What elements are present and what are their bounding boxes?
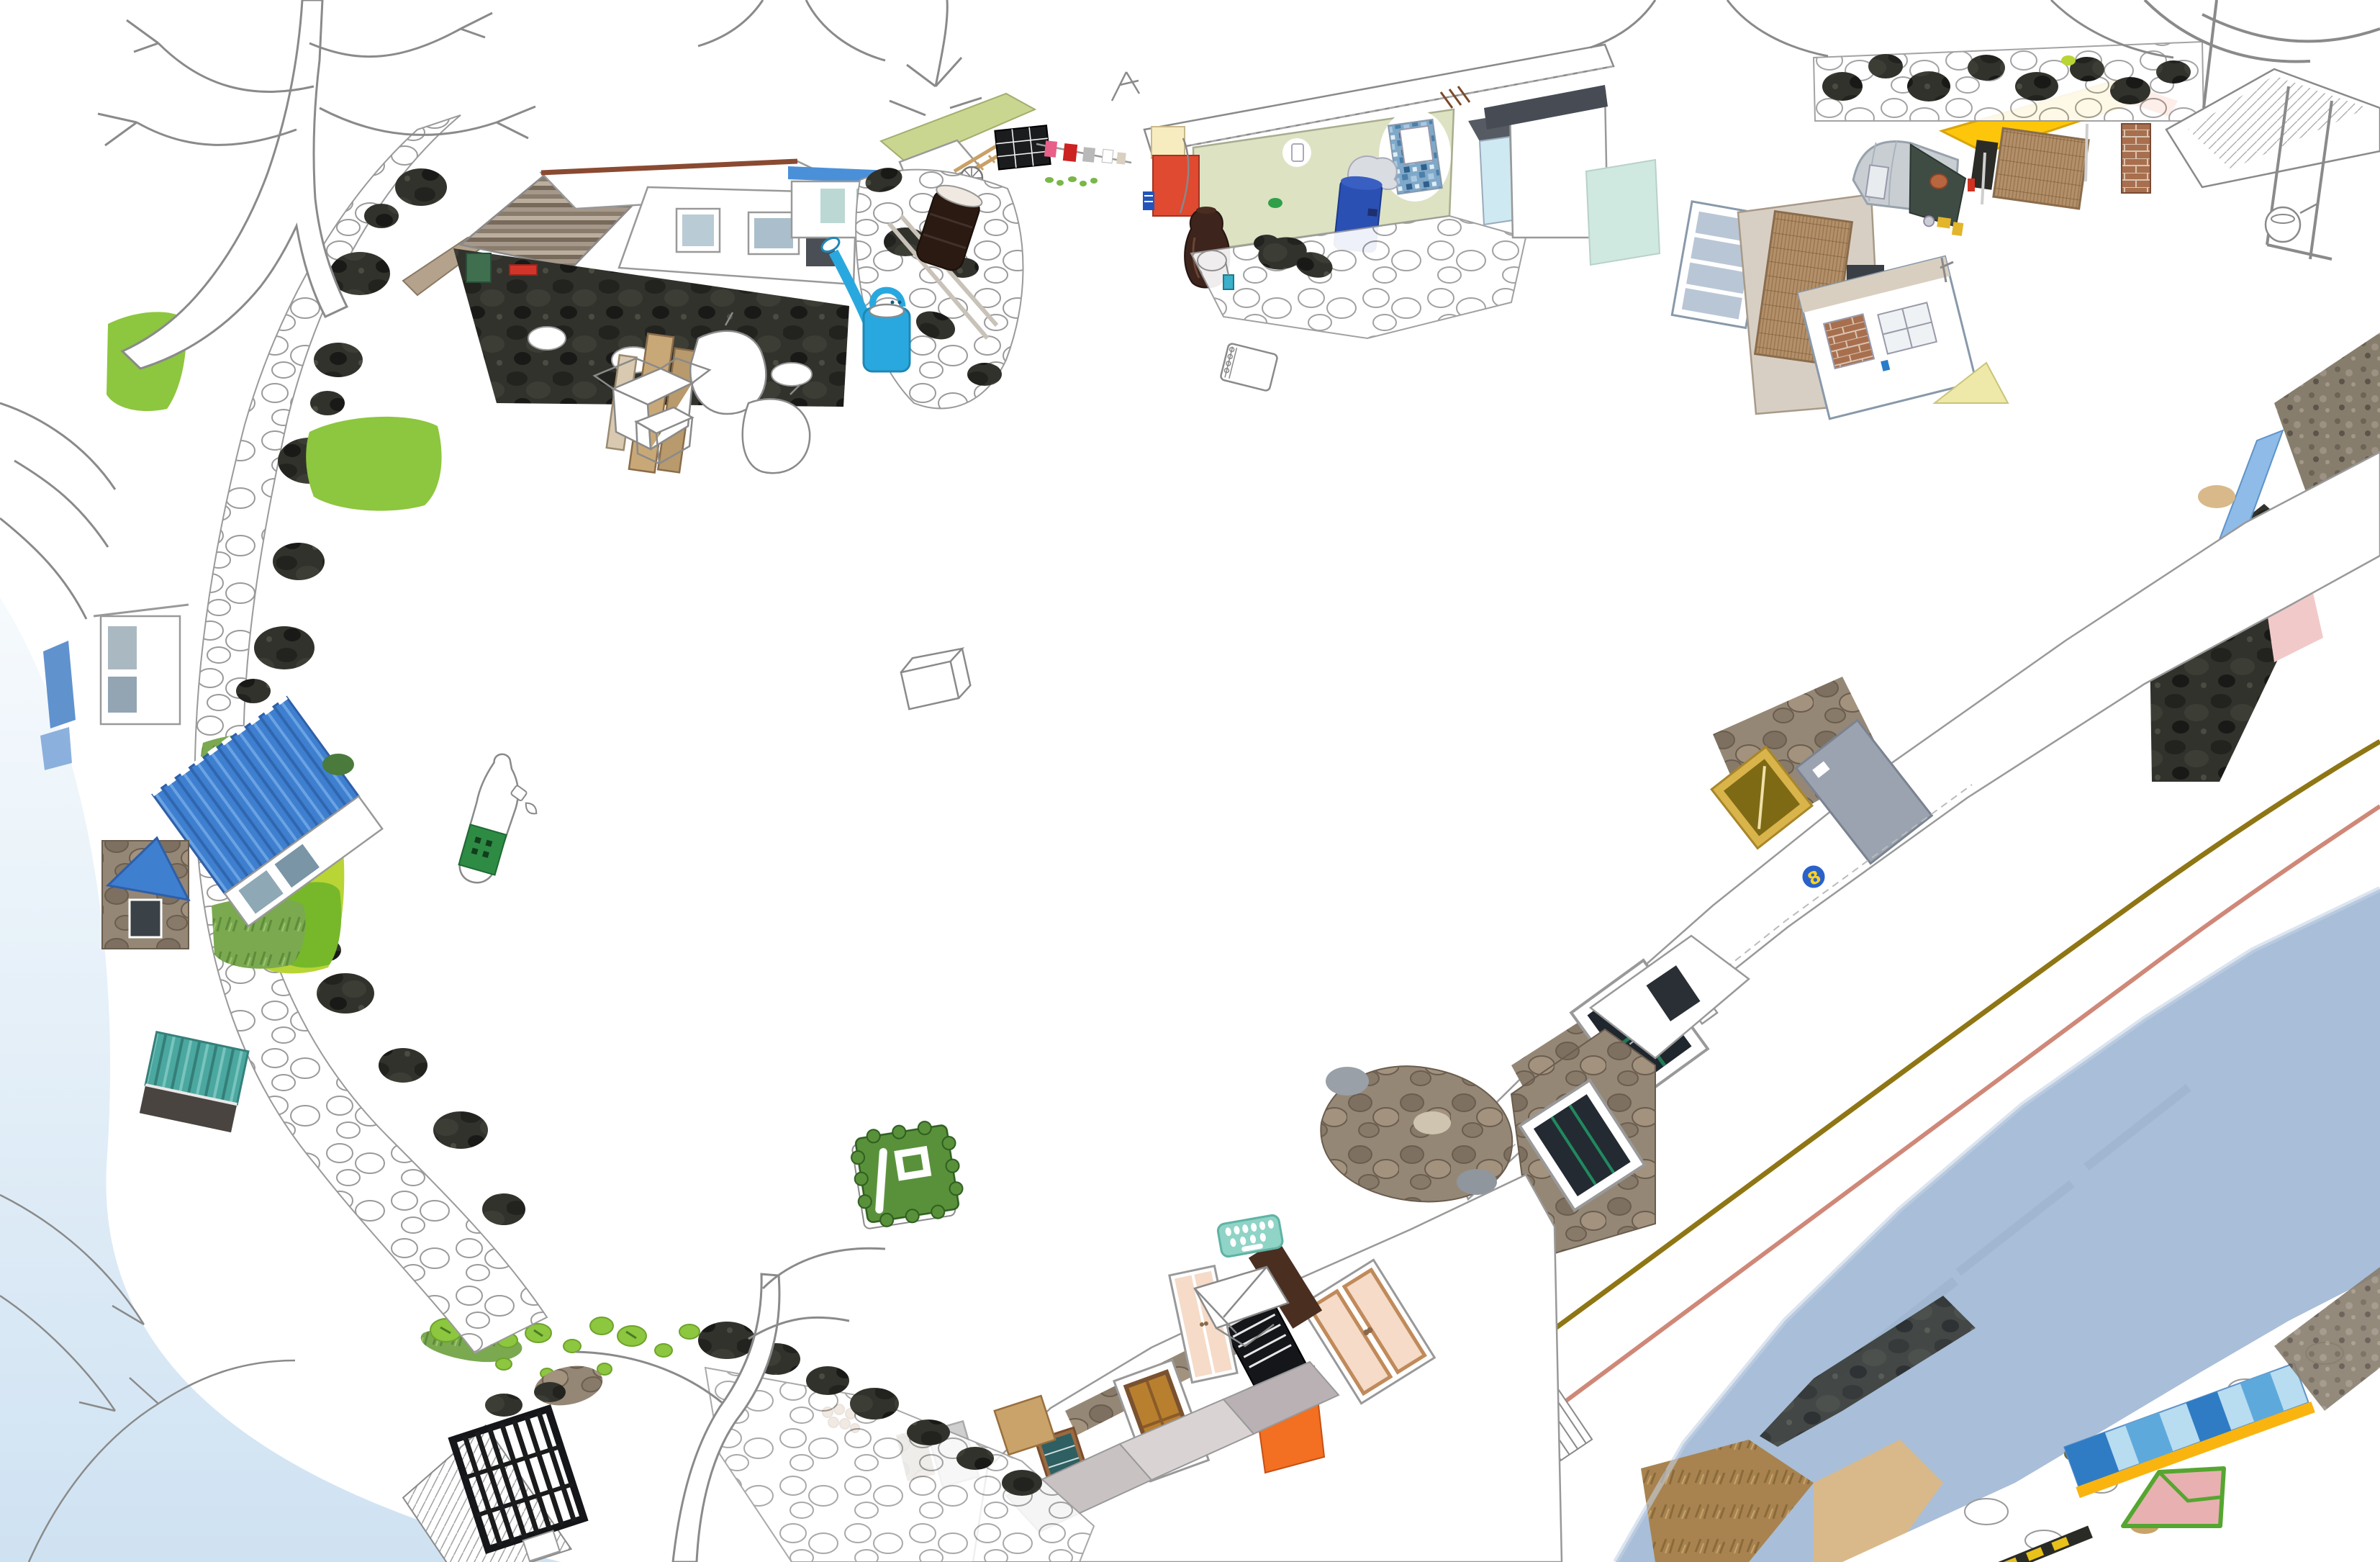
red-bench	[510, 265, 537, 275]
panorama-canvas: Pale blue sky along the left edge Blue-g…	[0, 0, 2380, 1562]
black-gate-panel	[995, 125, 1050, 169]
stone-house-blue-gable	[102, 838, 189, 949]
house-number-sign: Blue house-number sign 8	[1801, 864, 1826, 890]
brick-chimney	[2122, 124, 2150, 193]
green-door	[466, 253, 491, 282]
green-patch-upper	[306, 417, 441, 511]
